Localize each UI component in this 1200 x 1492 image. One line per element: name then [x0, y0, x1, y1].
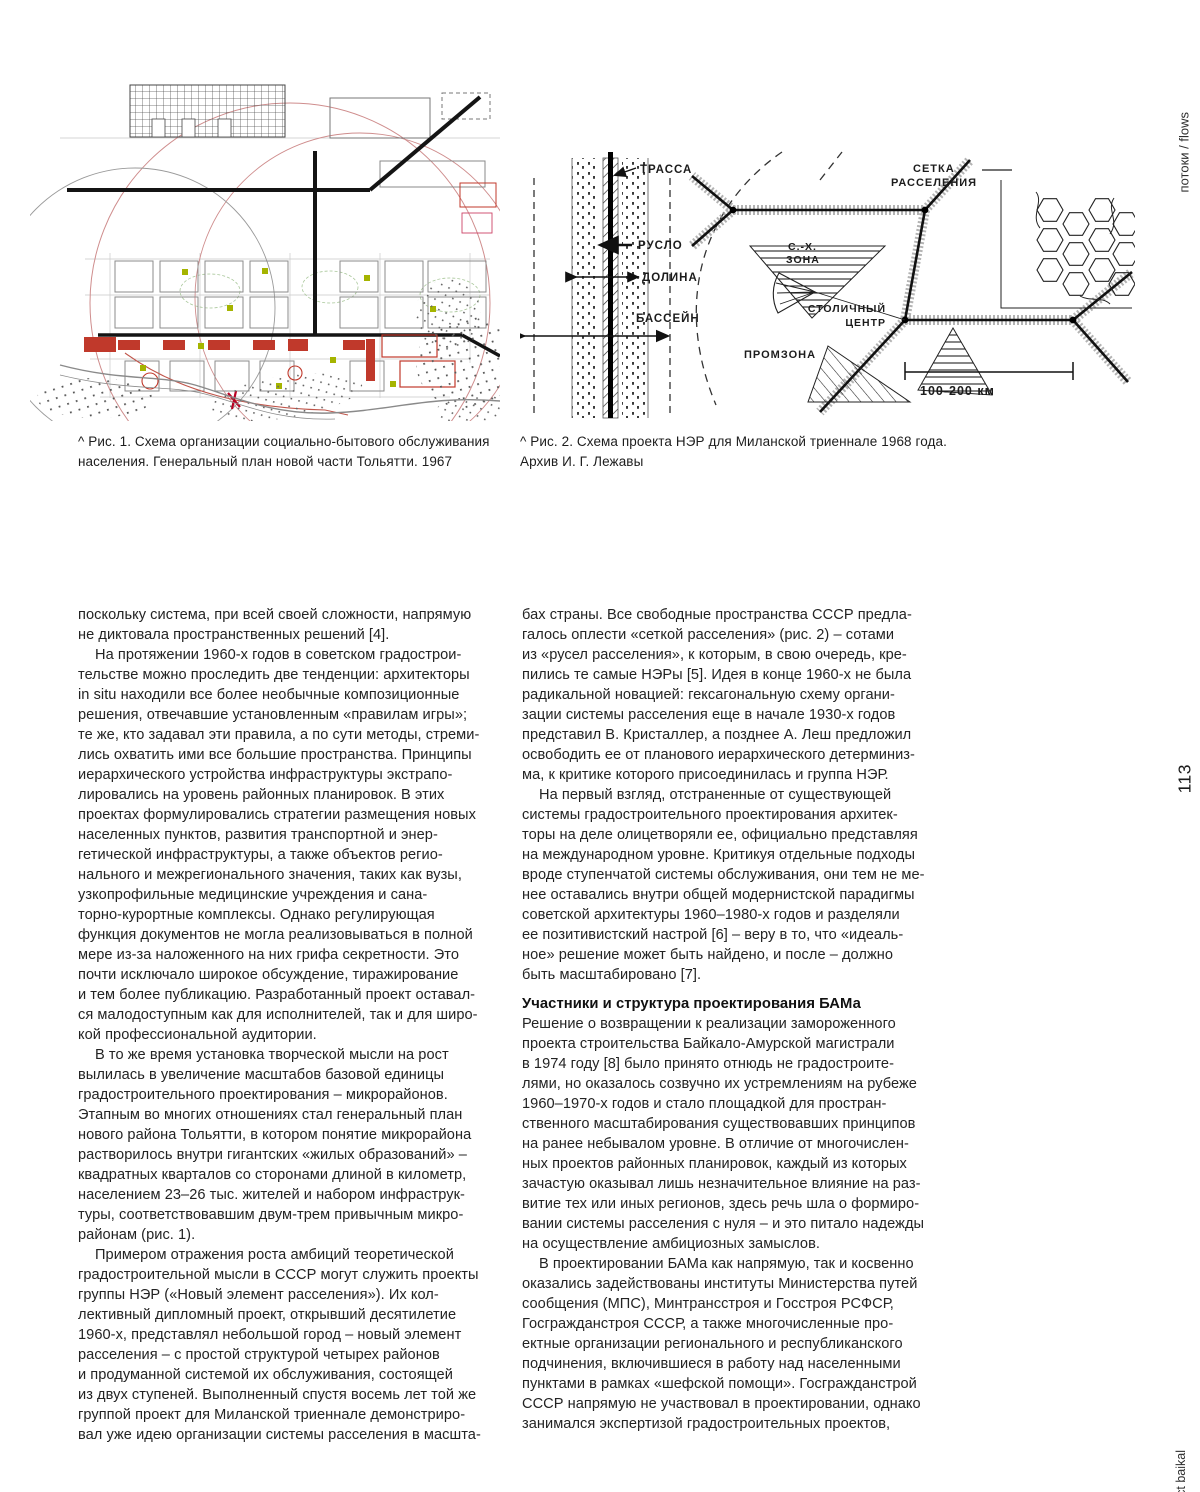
section-heading: Участники и структура проектирования БАМ… [522, 994, 950, 1014]
label-setka-1: СЕТКА [913, 163, 955, 175]
label-capital-1: СТОЛИЧНЫЙ [808, 302, 886, 315]
paragraph: На протяжении 1960-х годов в советском г… [78, 645, 506, 1045]
label-ruslo: РУСЛО [638, 240, 683, 252]
label-dolina: ДОЛИНА [642, 272, 698, 284]
label-scale: 100-200 км [920, 384, 995, 398]
label-bassein: БАССЕЙН [636, 312, 700, 325]
figure-1-town-plan [30, 63, 500, 421]
text-column-right: бах страны. Все свободные пространства С… [522, 605, 950, 1434]
label-skh-1: С.-Х. [788, 241, 817, 253]
label-skh-2: ЗОНА [786, 254, 820, 266]
label-promzona: ПРОМЗОНА [744, 349, 816, 361]
figure-1-caption: ^ Рис. 1. Схема организации социально-бы… [78, 432, 512, 471]
label-capital-2: ЦЕНТР [845, 317, 886, 329]
paragraph: В проектировании БАМа как напрямую, так … [522, 1254, 950, 1434]
industrial-block [130, 85, 285, 137]
figure-2-caption: ^ Рис. 2. Схема проекта НЭР для Миланско… [520, 432, 960, 471]
journal-imprint: проект байкал 2(84) project baikal [1174, 1450, 1188, 1492]
paragraph: Примером отражения роста амбиций теорети… [78, 1245, 506, 1445]
figure-1-drawing [30, 63, 500, 421]
figure-2-ner-scheme: ТРАССА РУСЛО ДОЛИНА БАССЕЙН [520, 150, 1135, 420]
paragraph: Решение о возвращении к реализации замор… [522, 1014, 950, 1254]
label-trassa: ТРАССА [640, 164, 692, 176]
paragraph: поскольку система, при всей своей сложно… [78, 605, 506, 645]
journal-page: ТРАССА РУСЛО ДОЛИНА БАССЕЙН [0, 0, 1200, 1492]
settlement-net: СЕТКА РАССЕЛЕНИЯ С.-Х. ЗОНА СТОЛИЧНЫЙ ЦЕ… [692, 152, 1135, 412]
valley-cross-section: ТРАССА РУСЛО ДОЛИНА БАССЕЙН [523, 152, 700, 418]
figure-2-drawing: ТРАССА РУСЛО ДОЛИНА БАССЕЙН [520, 150, 1135, 420]
paragraph: В то же время установка творческой мысли… [78, 1045, 506, 1245]
promzona-wedge [808, 346, 910, 402]
label-setka-2: РАССЕЛЕНИЯ [891, 177, 977, 189]
page-number: 113 [1174, 764, 1195, 793]
text-column-left: поскольку система, при всей своей сложно… [78, 605, 506, 1445]
paragraph: На первый взгляд, отстраненные от сущест… [522, 785, 950, 985]
rubric-label: потоки / flows [1176, 112, 1191, 192]
paragraph: бах страны. Все свободные пространства С… [522, 605, 950, 785]
